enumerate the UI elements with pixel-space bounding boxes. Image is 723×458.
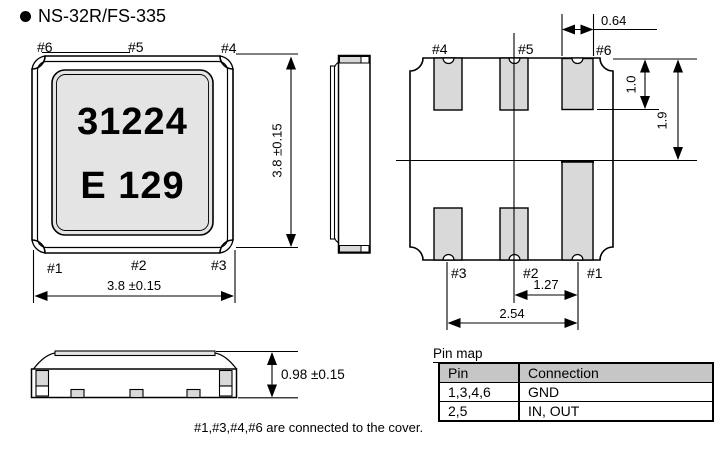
side-elevation-drawing xyxy=(32,351,299,398)
fv-height-dim: 3.8 ±0.15 xyxy=(270,111,285,191)
bv-pin3-label: #3 xyxy=(451,266,467,281)
bullet-icon xyxy=(20,11,31,22)
end-pad-right xyxy=(220,371,233,387)
marking-line2: E 129 xyxy=(52,166,213,206)
marking-line1: 31224 xyxy=(52,102,213,142)
pad-6 xyxy=(562,59,593,110)
table-row: 1,3,4,6 GND xyxy=(440,382,712,401)
pin-map-header-connection: Connection xyxy=(518,364,712,382)
table-row: 2,5 IN, OUT xyxy=(440,401,712,420)
side-body xyxy=(339,56,371,254)
fv-width-dim: 3.8 ±0.15 xyxy=(84,278,184,293)
fv-pin1-label: #1 xyxy=(47,261,63,276)
end-pad-left-foot xyxy=(36,386,49,396)
bv-span-dim: 2.54 xyxy=(479,306,545,321)
pad-1 xyxy=(562,161,593,260)
fv-pin5-label: #5 xyxy=(128,40,144,55)
side-view-drawing xyxy=(331,56,371,254)
metal-lid xyxy=(52,70,213,235)
bv-pad-height-dim: 1.0 xyxy=(624,55,639,115)
datasheet-dimension-drawing: NS-32R/FS-335 #6 #5 #4 #1 #2 #3 31224 E … xyxy=(0,0,723,458)
side-pad-bottom-corner xyxy=(361,246,369,253)
bv-pitch-dim: 1.27 xyxy=(513,277,579,292)
end-pad-right-foot xyxy=(220,386,233,396)
bv-pad-width-dim: 0.64 xyxy=(601,13,626,28)
pin-map-header-row: Pin Connection xyxy=(440,364,712,382)
pin-map-table: Pin Connection 1,3,4,6 GND 2,5 IN, OUT xyxy=(438,362,714,422)
page-title: NS-32R/FS-335 xyxy=(38,6,166,26)
fv-pin2-label: #2 xyxy=(131,258,147,273)
fv-pin4-label: #4 xyxy=(221,41,237,56)
side-cover-edge xyxy=(331,66,335,239)
pin-map-header-pin: Pin xyxy=(440,364,518,382)
bv-pin5-label: #5 xyxy=(518,42,534,57)
pin-cell: 2,5 xyxy=(440,402,518,420)
se-height-dim: 0.98 ±0.15 xyxy=(281,367,345,382)
connection-cell: IN, OUT xyxy=(518,402,712,420)
pad-4 xyxy=(434,58,462,110)
pin-map-caption: Pin map xyxy=(433,346,493,363)
bv-pin1-label: #1 xyxy=(587,266,603,281)
bv-pin6-label: #6 xyxy=(596,43,612,58)
side-pad-top-corner xyxy=(361,57,369,64)
cover-connection-note: #1,#3,#4,#6 are connected to the cover. xyxy=(194,420,423,435)
pin-cell: 1,3,4,6 xyxy=(440,383,518,401)
pad-3 xyxy=(434,208,462,260)
side-pad-bottom xyxy=(340,246,362,253)
fv-pin6-label: #6 xyxy=(37,40,53,55)
cover-top xyxy=(55,351,215,356)
title-row: NS-32R/FS-335 xyxy=(20,6,166,26)
pin-map-body: 1,3,4,6 GND 2,5 IN, OUT xyxy=(440,382,712,420)
end-pad-left xyxy=(36,371,49,387)
fv-pin3-label: #3 xyxy=(211,258,227,273)
connection-cell: GND xyxy=(518,383,712,401)
bv-pin4-label: #4 xyxy=(432,42,448,57)
bv-edge-center-dim: 1.9 xyxy=(655,91,670,151)
side-pad-top xyxy=(340,57,362,64)
